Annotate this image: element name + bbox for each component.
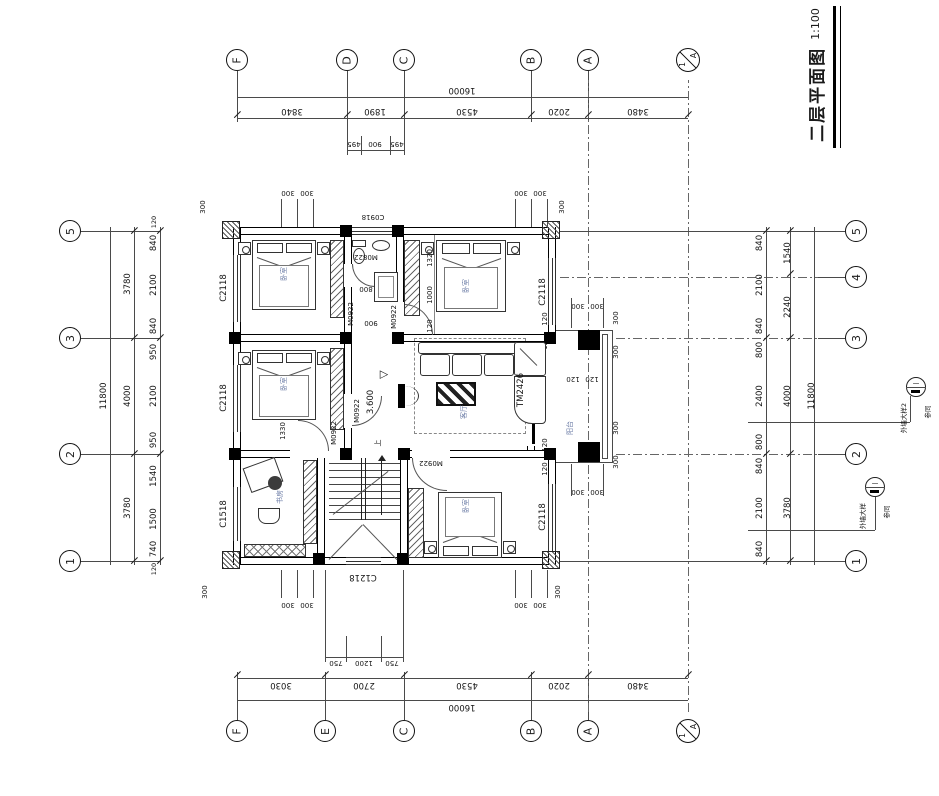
dim-witness xyxy=(515,570,516,598)
column xyxy=(392,225,404,237)
sofa-seat xyxy=(484,354,514,376)
wall xyxy=(233,450,290,458)
grid-bubble-right-5: 5 xyxy=(845,220,867,242)
pillow xyxy=(443,546,469,556)
lamp-icon xyxy=(242,356,250,364)
callout-leader xyxy=(910,396,911,422)
grid-label: A xyxy=(689,53,698,58)
room-label-bedroom: 卧室 xyxy=(279,377,289,391)
grid-stem xyxy=(81,338,161,339)
nightstand xyxy=(503,541,516,554)
dim-label: 300 xyxy=(281,601,294,609)
wall xyxy=(397,227,556,235)
title-scale: 1:100 xyxy=(809,8,822,40)
window-C0918 xyxy=(349,227,397,235)
nightstand xyxy=(317,242,330,255)
dim-label: 120 xyxy=(426,319,434,332)
level-value: 3.600 xyxy=(366,390,376,414)
callout-label: 外墙大样 xyxy=(857,503,867,529)
corner-column xyxy=(542,551,560,569)
grid-bubble-right-4: 4 xyxy=(845,266,867,288)
dim-label: 950 xyxy=(149,432,159,448)
nightstand xyxy=(238,242,251,255)
dim-label: 3480 xyxy=(627,106,649,116)
dim-label: 1330 xyxy=(279,422,287,440)
drawing-title: 二层平面图 1:100 xyxy=(798,0,832,150)
detail-bubble-mark: 一 xyxy=(913,378,920,388)
dim-witness xyxy=(571,298,572,328)
balcony-column xyxy=(578,330,600,350)
wall xyxy=(400,458,408,565)
lamp-icon xyxy=(511,246,519,254)
room-label-balcony: 阳台 xyxy=(565,421,575,435)
grid-line-4 xyxy=(560,277,818,278)
dim-label: 300 xyxy=(533,189,546,197)
stair-direction-line xyxy=(381,460,382,515)
dim-label: 120 xyxy=(585,375,598,383)
grid-label: D xyxy=(340,56,353,64)
dim-label: 840 xyxy=(755,235,765,251)
dim-total-bottom: 16000 xyxy=(448,702,475,712)
dim-line xyxy=(237,118,688,119)
column xyxy=(544,332,556,344)
dim-label: 3030 xyxy=(270,680,292,690)
shower-tray xyxy=(378,276,394,298)
room-label-bedroom: 卧室 xyxy=(461,279,471,293)
wardrobe xyxy=(330,240,344,318)
grid-label: F xyxy=(230,57,243,63)
mattress xyxy=(444,267,498,309)
balcony-column xyxy=(578,442,600,462)
balcony-slab-edge xyxy=(612,330,613,463)
window-C2118 xyxy=(548,484,556,551)
window-tag: C2118 xyxy=(219,274,229,302)
dim-witness xyxy=(297,570,298,598)
grid-label: 2 xyxy=(850,451,863,458)
grid-stem xyxy=(81,561,161,562)
dim-witness xyxy=(325,570,326,662)
stair-stringer xyxy=(361,458,362,520)
corner-column xyxy=(222,551,240,569)
column xyxy=(392,332,404,344)
detail-bubble-sheet xyxy=(870,490,879,493)
grid-line-A xyxy=(588,80,589,712)
dim-label: 750 xyxy=(385,659,398,667)
dim-label: 2100 xyxy=(755,274,765,296)
grid-label: C xyxy=(398,56,411,64)
grid-bubble-left-3: 3 xyxy=(59,327,81,349)
dim-label: 1500 xyxy=(149,508,159,530)
grid-label: A xyxy=(689,724,698,729)
pillow xyxy=(473,243,501,254)
dim-label: 3780 xyxy=(783,497,793,519)
bookshelf-wall xyxy=(303,460,317,544)
grid-stem xyxy=(818,277,845,278)
wall xyxy=(317,458,325,565)
lamp-icon xyxy=(507,545,515,553)
corner-column xyxy=(222,221,240,239)
callout-label: 外墙大样2 xyxy=(898,403,908,433)
door-tag: M0922 xyxy=(390,305,398,329)
dim-label: 300 xyxy=(201,585,209,598)
dim-label: 120 xyxy=(566,375,579,383)
lamp-icon xyxy=(428,545,436,553)
grid-bubble-bottom-B: B xyxy=(520,720,542,742)
dim-witness xyxy=(531,199,532,227)
room-label-living: 客厅 xyxy=(459,405,469,419)
grid-bubble-bottom-1A: 1 A xyxy=(676,719,700,743)
dim-witness xyxy=(297,199,298,227)
pillow xyxy=(257,353,283,363)
grid-label: F xyxy=(230,728,243,734)
window-tag: C2118 xyxy=(538,503,548,531)
dim-label: 840 xyxy=(149,235,159,251)
callout-leader xyxy=(875,497,876,530)
dim-label: 1890 xyxy=(364,106,386,116)
dim-line xyxy=(434,235,435,334)
dim-witness xyxy=(515,199,516,227)
grid-label: B xyxy=(524,56,537,64)
dim-label: 300 xyxy=(612,345,620,358)
grid-label: A xyxy=(582,727,595,735)
dim-label: 3780 xyxy=(123,273,133,295)
dim-label: 300 xyxy=(571,302,584,310)
dim-label: 900 xyxy=(364,319,377,327)
grid-line-1 xyxy=(560,561,818,562)
title-text: 二层平面图 xyxy=(803,47,828,142)
window-tag: C0918 xyxy=(362,213,385,221)
door-tag: M0922 xyxy=(347,302,355,326)
callout-ref: 参同 xyxy=(881,506,891,519)
column xyxy=(313,553,325,565)
wardrobe xyxy=(330,348,344,430)
dim-label: 1000 xyxy=(426,286,434,304)
window-tag: C1518 xyxy=(219,500,229,528)
dim-line xyxy=(766,227,767,565)
balcony-railing xyxy=(602,334,608,335)
wall xyxy=(233,334,352,342)
dim-label: 300 xyxy=(300,189,313,197)
dim-witness xyxy=(281,570,282,598)
grid-stem xyxy=(531,672,532,720)
dim-line xyxy=(134,227,135,565)
dim-label: 300 xyxy=(590,302,603,310)
dim-label: 740 xyxy=(149,541,159,557)
callout-leader xyxy=(748,422,910,423)
dim-line xyxy=(237,97,688,98)
column xyxy=(229,332,241,344)
dim-total-top: 16000 xyxy=(448,85,475,95)
grid-label: 5 xyxy=(64,228,77,235)
dim-label: 300 xyxy=(558,200,566,213)
door-arc-M0922 xyxy=(298,420,329,451)
dim-label: 300 xyxy=(300,601,313,609)
grid-label: 5 xyxy=(850,228,863,235)
cabinet xyxy=(258,508,280,524)
dim-label: 300 xyxy=(199,200,207,213)
dim-total-right: 11800 xyxy=(807,382,817,409)
dim-label: 1200 xyxy=(355,659,373,667)
dim-label: 1540 xyxy=(783,242,793,264)
nightstand xyxy=(424,541,437,554)
dim-label: 300 xyxy=(612,311,620,324)
floor-plan-sheet: 二层平面图 1:100 F D C B A 1 A F E C B A 1 A … xyxy=(0,0,939,796)
window-C2118 xyxy=(233,255,241,322)
grid-bubble-left-1: 1 xyxy=(59,550,81,572)
window-C2118 xyxy=(233,365,241,432)
dim-label: 950 xyxy=(149,344,159,360)
chair-icon xyxy=(268,476,282,490)
dim-line xyxy=(110,227,111,565)
pillow xyxy=(257,243,283,253)
bookshelf xyxy=(244,544,306,557)
dim-label: 300 xyxy=(281,189,294,197)
grid-stem xyxy=(237,672,238,720)
grid-bubble-bottom-E: E xyxy=(314,720,336,742)
stair-up-label: 上 xyxy=(373,440,383,447)
balcony-slab-edge xyxy=(556,462,612,463)
dim-label: 4000 xyxy=(123,385,133,407)
dim-label: 495 xyxy=(390,140,403,148)
dim-witness xyxy=(603,298,604,328)
door-arc-M0822 xyxy=(352,264,375,287)
window-tag: C2118 xyxy=(538,278,548,306)
dim-label: 2100 xyxy=(149,385,159,407)
dim-label: 800 xyxy=(755,342,765,358)
dim-witness xyxy=(547,570,548,598)
grid-stem xyxy=(81,454,161,455)
door-tag: M0922 xyxy=(419,459,443,467)
dim-label: 4530 xyxy=(456,680,478,690)
dim-label: 750 xyxy=(329,659,342,667)
dim-label: 3480 xyxy=(627,680,649,690)
grid-label: 1 xyxy=(678,733,687,738)
door-tag: M0922 xyxy=(330,421,338,445)
lamp-icon xyxy=(321,246,329,254)
dim-witness xyxy=(531,570,532,598)
dim-label: 840 xyxy=(755,541,765,557)
balcony-railing xyxy=(602,334,603,459)
dim-label: 900 xyxy=(368,140,381,148)
dim-total-left: 11800 xyxy=(99,382,109,409)
wardrobe xyxy=(408,488,424,558)
grid-bubble-right-3: 3 xyxy=(845,327,867,349)
door-tag: TM2426 xyxy=(516,373,526,407)
pillow xyxy=(286,243,312,253)
dim-witness xyxy=(404,122,405,155)
grid-bubble-right-1: 1 xyxy=(845,550,867,572)
wall xyxy=(233,227,349,235)
grid-line-1A xyxy=(688,80,689,712)
dim-witness xyxy=(603,464,604,496)
dim-label: 2100 xyxy=(755,497,765,519)
room-label-study: 书房 xyxy=(275,490,285,504)
grid-bubble-top-A: A xyxy=(577,49,599,71)
sofa-back xyxy=(418,342,518,354)
dim-witness xyxy=(346,636,347,662)
dim-label: 2100 xyxy=(149,274,159,296)
grid-bubble-top-D: D xyxy=(336,49,358,71)
dim-witness xyxy=(361,136,362,155)
detail-bubble-sheet xyxy=(911,390,920,393)
callout-leader xyxy=(748,530,875,531)
room-label-bedroom: 卧室 xyxy=(279,267,289,281)
grid-label: 1 xyxy=(64,558,77,565)
sofa-seat xyxy=(420,354,450,376)
toilet-tank xyxy=(352,240,366,247)
dim-witness xyxy=(313,570,314,598)
dim-label: 840 xyxy=(149,318,159,334)
grid-label: 3 xyxy=(64,335,77,342)
window-C1218 xyxy=(346,557,381,565)
dim-label: 800 xyxy=(359,285,372,293)
dim-label: 840 xyxy=(755,318,765,334)
sink-icon xyxy=(372,240,390,251)
stair-landing-line xyxy=(363,524,398,560)
dim-label: 300 xyxy=(533,601,546,609)
dim-label: 3780 xyxy=(123,497,133,519)
nightstand xyxy=(238,352,251,365)
dim-label: 4000 xyxy=(783,385,793,407)
column xyxy=(340,332,352,344)
dim-label: 495 xyxy=(347,140,360,148)
grid-bubble-top-F: F xyxy=(226,49,248,71)
dim-label: 300 xyxy=(514,601,527,609)
corner-column xyxy=(542,221,560,239)
grid-bubble-bottom-C: C xyxy=(393,720,415,742)
dim-witness xyxy=(313,199,314,227)
grid-stem xyxy=(818,338,845,339)
dim-label: 300 xyxy=(571,488,584,496)
dim-label: 840 xyxy=(755,458,765,474)
room-label-bedroom: 卧室 xyxy=(461,499,471,513)
grid-bubble-top-1A: 1 A xyxy=(676,48,700,72)
grid-bubble-left-5: 5 xyxy=(59,220,81,242)
nightstand xyxy=(317,352,330,365)
sofa-seat xyxy=(452,354,482,376)
dim-label: 2020 xyxy=(548,680,570,690)
grid-bubble-left-2: 2 xyxy=(59,443,81,465)
window-C2118 xyxy=(548,258,556,325)
dim-witness xyxy=(403,570,404,662)
grid-stem xyxy=(818,231,845,232)
grid-bubble-top-B: B xyxy=(520,49,542,71)
door-tag: M0822 xyxy=(354,253,378,261)
grid-stem xyxy=(404,672,405,720)
dim-label: 3840 xyxy=(281,106,303,116)
dim-label: 300 xyxy=(554,585,562,598)
grid-label: A xyxy=(582,56,595,64)
grid-stem xyxy=(81,231,161,232)
column xyxy=(340,225,352,237)
bed xyxy=(436,240,506,312)
pillow xyxy=(286,353,312,363)
grid-label: C xyxy=(398,727,411,735)
dim-label: 2700 xyxy=(353,680,375,690)
grid-label: 1 xyxy=(678,62,687,67)
dim-label: 120 xyxy=(150,216,158,228)
dim-line xyxy=(160,227,161,565)
grid-label: 1 xyxy=(850,558,863,565)
dim-witness xyxy=(381,636,382,662)
dim-label: 300 xyxy=(612,455,620,468)
balcony-railing xyxy=(607,334,608,459)
grid-bubble-bottom-F: F xyxy=(226,720,248,742)
arrow-up-icon xyxy=(378,455,386,461)
grid-label: 4 xyxy=(850,274,863,281)
tv-icon xyxy=(398,384,405,408)
level-symbol: ▷ xyxy=(380,368,388,381)
door-tag: M0922 xyxy=(353,399,361,423)
dim-label: 1320 xyxy=(426,249,434,267)
dim-line xyxy=(347,150,404,151)
dim-label: 2400 xyxy=(755,385,765,407)
window-tag: C2118 xyxy=(219,384,229,412)
grid-bubble-bottom-A: A xyxy=(577,720,599,742)
wall xyxy=(450,450,548,458)
dim-label: 800 xyxy=(755,434,765,450)
pillow xyxy=(442,243,470,254)
dim-line xyxy=(237,678,688,679)
dim-label: 2020 xyxy=(548,106,570,116)
dim-witness xyxy=(347,122,348,155)
grid-label: B xyxy=(524,727,537,735)
dim-label: 300 xyxy=(612,421,620,434)
dim-witness xyxy=(571,464,572,496)
grid-bubble-top-C: C xyxy=(393,49,415,71)
grid-stem xyxy=(818,561,845,562)
lamp-icon xyxy=(242,246,250,254)
column xyxy=(229,448,241,460)
coffee-table xyxy=(436,382,476,406)
dim-label: 4530 xyxy=(456,106,478,116)
title-underline xyxy=(833,6,841,148)
grid-stem xyxy=(325,672,326,720)
shower-box xyxy=(374,272,398,302)
detail-bubble-mark: 一 xyxy=(872,478,879,488)
dim-line xyxy=(325,657,403,658)
callout-ref: 参同 xyxy=(922,406,932,419)
grid-bubble-right-2: 2 xyxy=(845,443,867,465)
dim-label: 300 xyxy=(514,189,527,197)
wardrobe xyxy=(404,240,420,316)
window-tag: C1218 xyxy=(349,572,377,582)
grid-stem xyxy=(818,454,845,455)
window-C1518 xyxy=(233,487,241,541)
grid-label: E xyxy=(318,728,331,735)
lamp-icon xyxy=(321,356,329,364)
dim-witness xyxy=(281,199,282,227)
grid-label: 2 xyxy=(64,451,77,458)
grid-line-5 xyxy=(560,231,818,232)
dim-label: 300 xyxy=(590,488,603,496)
dim-label: 120 xyxy=(150,563,158,575)
dim-label: 2240 xyxy=(783,296,793,318)
dim-line xyxy=(237,700,688,701)
column xyxy=(544,448,556,460)
grid-label: 3 xyxy=(850,335,863,342)
pillow xyxy=(472,546,498,556)
dim-label: 1540 xyxy=(149,465,159,487)
stair-landing-line xyxy=(329,525,363,560)
balcony-railing xyxy=(602,458,608,459)
nightstand xyxy=(507,242,520,255)
